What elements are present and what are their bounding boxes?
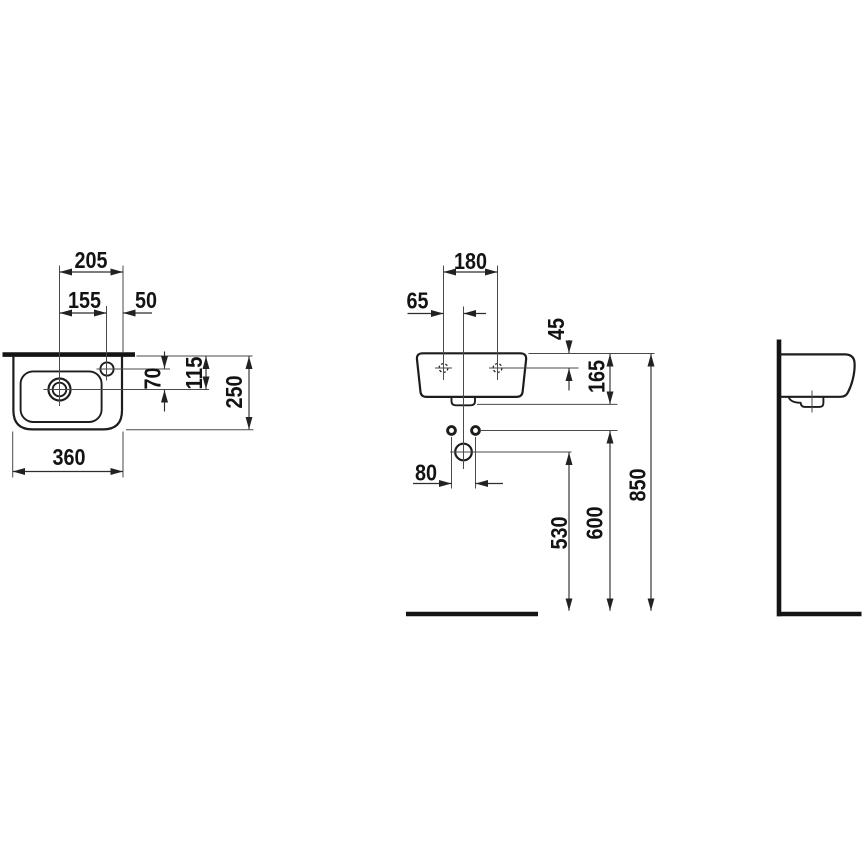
top-view-outline <box>3 355 136 430</box>
drain-trap-side <box>789 397 824 407</box>
fixing-hole-right <box>472 427 480 435</box>
fixing-hole-left <box>448 427 456 435</box>
dim-label-70: 70 <box>140 368 166 390</box>
dim-label-165: 165 <box>584 360 610 393</box>
front-view-dimension-lines <box>406 266 655 615</box>
basin-front-body <box>417 353 526 397</box>
washbasin-technical-drawing: 205 155 50 70 115 250 360 <box>0 0 868 868</box>
drawing-canvas: 205 155 50 70 115 250 360 <box>0 0 868 868</box>
front-view-outline <box>417 353 526 460</box>
top-view: 205 155 50 70 115 250 360 <box>3 247 254 478</box>
dim-label-45: 45 <box>543 318 569 340</box>
front-view: 180 65 45 165 80 530 600 850 <box>406 248 655 614</box>
basin-side-profile <box>781 354 855 396</box>
dim-label-155: 155 <box>68 287 101 313</box>
dim-label-180: 180 <box>454 248 487 274</box>
dim-label-115: 115 <box>181 356 207 389</box>
dim-label-65: 65 <box>407 288 429 314</box>
basin-outer-rim <box>13 357 122 430</box>
dim-label-850: 850 <box>625 469 651 502</box>
dim-label-250: 250 <box>221 376 247 409</box>
dim-label-530: 530 <box>546 517 572 550</box>
dim-label-360: 360 <box>53 444 86 470</box>
dim-label-205: 205 <box>75 247 108 273</box>
top-view-labels: 205 155 50 70 115 250 360 <box>53 247 248 470</box>
dim-label-50: 50 <box>135 287 157 313</box>
side-view <box>777 340 862 617</box>
dim-label-600: 600 <box>582 507 608 540</box>
dim-label-80: 80 <box>415 460 437 486</box>
